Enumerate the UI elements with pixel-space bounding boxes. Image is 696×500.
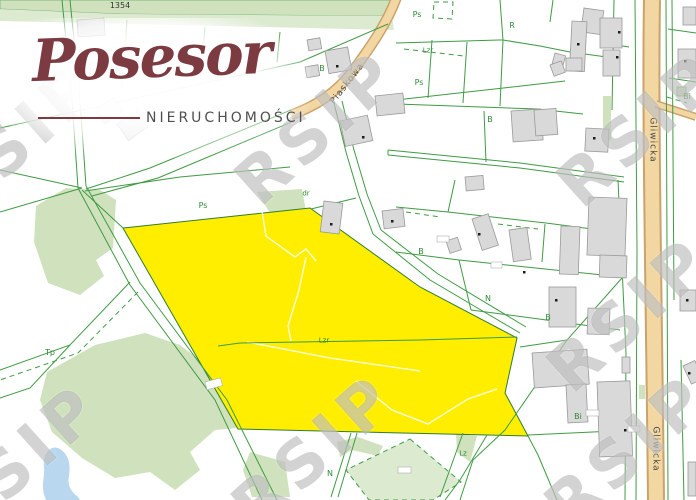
land-use-label-ps: Ps (413, 11, 422, 19)
logo-underline (38, 117, 140, 119)
land-use-label-b3: B (418, 248, 424, 256)
forest-patch-left (34, 188, 116, 295)
logo-brand-text: Posesor (31, 24, 271, 90)
street-label-gliwicka-north: Gliwicka (648, 117, 657, 162)
street-label-gliwicka-south: Gliwicka (651, 426, 660, 471)
land-use-label-bi2: Bi (683, 93, 691, 101)
land-use-label-ps3: Ps (199, 202, 208, 210)
land-use-label-lzr2: Lzr (319, 338, 329, 345)
land-use-label-n2: N (327, 470, 333, 478)
land-use-label-tp: Tp (45, 349, 55, 357)
land-use-label-dr: dr (302, 191, 309, 198)
land-use-label-n: N (485, 295, 491, 303)
land-use-label-lzr: Lzr (423, 48, 433, 55)
forest-blob-bottom (337, 437, 383, 457)
land-use-label-b2: B (319, 65, 325, 73)
land-use-label-lz: Lz (459, 451, 467, 458)
parcel-number-label: 1354 (110, 2, 130, 10)
map-canvas[interactable]: 1354 Ps R Lzr Ps B B Ps dr B N B Lzr Tp … (0, 0, 696, 500)
agency-logo: Posesor NIERUCHOMOŚCI (10, 18, 310, 158)
land-use-label-bi: Bi (574, 413, 582, 421)
water-pond (43, 448, 80, 500)
land-use-label-b: B (487, 116, 493, 124)
green-square-marker-2 (639, 385, 645, 399)
logo-subtitle-text: NIERUCHOMOŚCI (146, 110, 306, 126)
land-use-label-r: R (509, 22, 515, 30)
land-use-label-ps2: Ps (415, 79, 424, 87)
land-use-label-b4: B (545, 314, 551, 322)
